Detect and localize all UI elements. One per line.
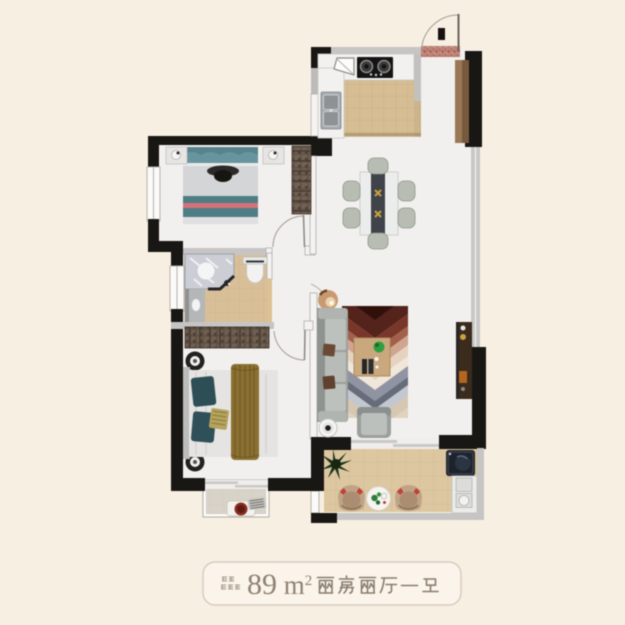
svg-text:89 m2: 89 m2 [247,568,312,601]
